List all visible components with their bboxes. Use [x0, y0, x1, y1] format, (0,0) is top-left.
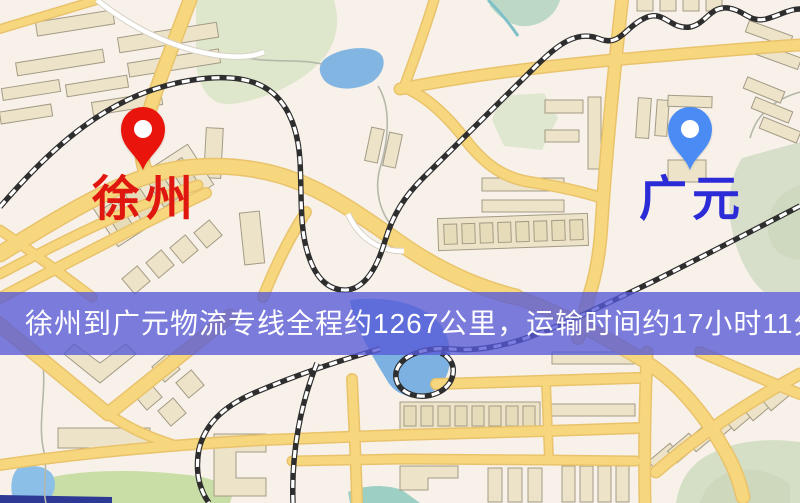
destination-label: 广元: [636, 176, 748, 224]
route-info-text: 徐州到广元物流专线全程约1267公里，运输时间约17小时11分钟.: [25, 308, 800, 339]
origin-pin-icon[interactable]: [118, 106, 168, 170]
logistics-map-screenshot: 徐州 广元 徐州到广元物流专线全程约1267公里，运输时间约17小时11分钟.: [0, 0, 800, 503]
destination-pin-icon[interactable]: [665, 106, 715, 170]
origin-label: 徐州: [88, 176, 202, 224]
map-canvas[interactable]: [0, 0, 800, 503]
route-info-banner: 徐州到广元物流专线全程约1267公里，运输时间约17小时11分钟.: [0, 292, 800, 355]
